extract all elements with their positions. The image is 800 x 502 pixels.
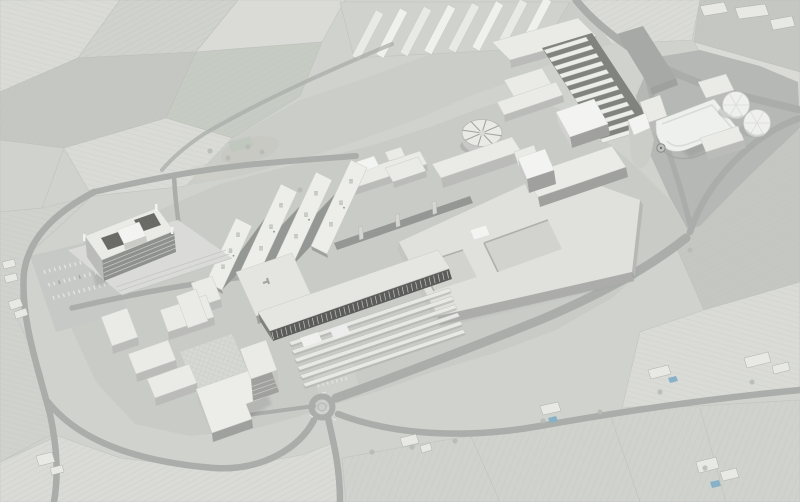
masterplan-canvas [0, 0, 800, 502]
aerial-render [0, 0, 800, 502]
haze-overlay [0, 0, 800, 502]
